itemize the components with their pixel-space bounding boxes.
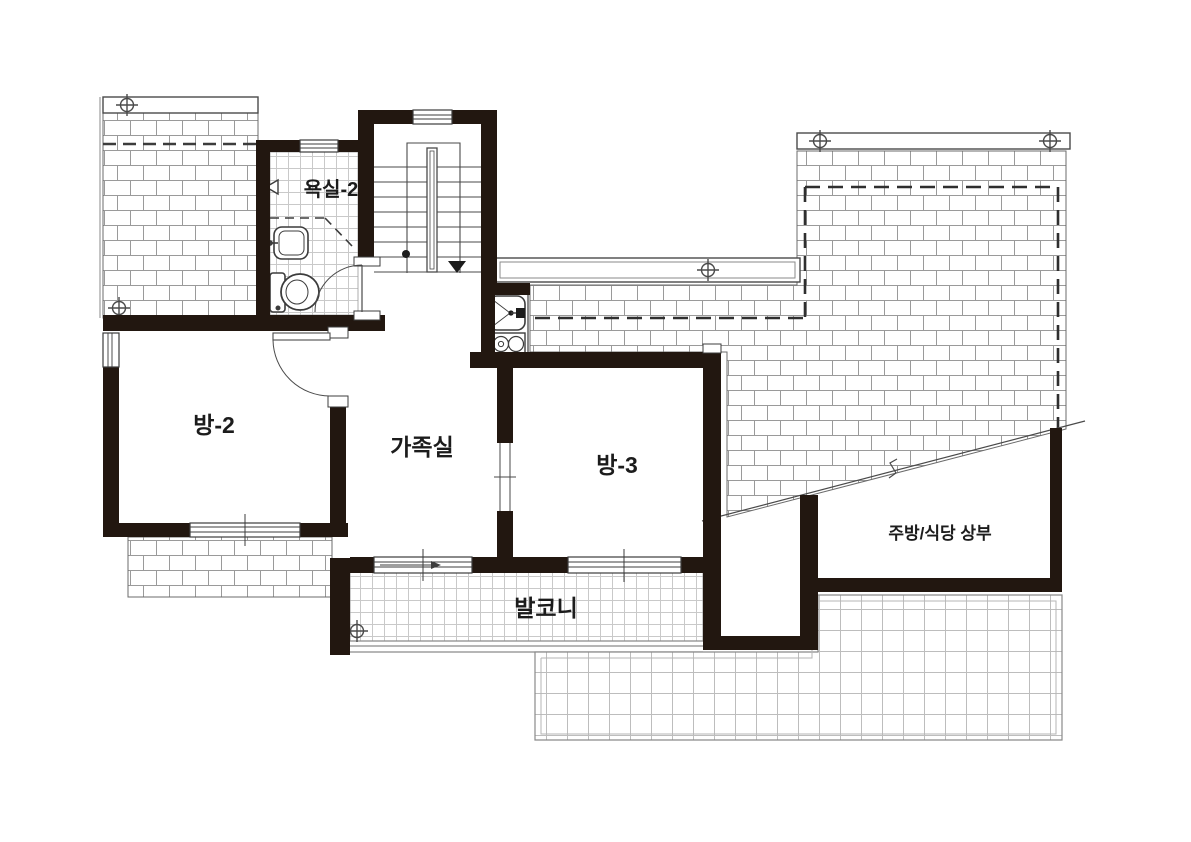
stair-down-arrow-icon (448, 261, 466, 273)
room2-left-window (103, 333, 119, 367)
floor-plan-drawing: 욕실-2 (0, 0, 1191, 842)
room2-door (273, 333, 330, 396)
floor-plan-canvas: 욕실-2 (0, 0, 1191, 842)
staircase (374, 143, 481, 273)
roof-hatch-top-left (100, 94, 258, 319)
room-label-kitchen-dining-upper: 주방/식당 상부 (888, 524, 992, 543)
stair-start-dot (402, 250, 410, 258)
balcony-railing (350, 641, 703, 652)
stair-handrail (427, 148, 437, 272)
stairhall-window (413, 110, 452, 124)
room-bathroom2: 욕실-2 (266, 152, 358, 315)
bathroom-window (300, 140, 338, 152)
toilet-icon (270, 273, 319, 312)
family-room3-opening (494, 443, 516, 511)
room-label-bathroom2: 욕실-2 (304, 178, 359, 201)
room-label-room3: 방-3 (596, 452, 638, 478)
ridge-cap (797, 133, 1070, 149)
roof-hatch-bottom-left (128, 537, 332, 597)
roof-hatch-right (495, 130, 1085, 521)
room-label-room2: 방-2 (193, 412, 235, 438)
room-label-family-room: 가족실 (390, 434, 453, 460)
room-label-balcony: 발코니 (514, 595, 577, 621)
